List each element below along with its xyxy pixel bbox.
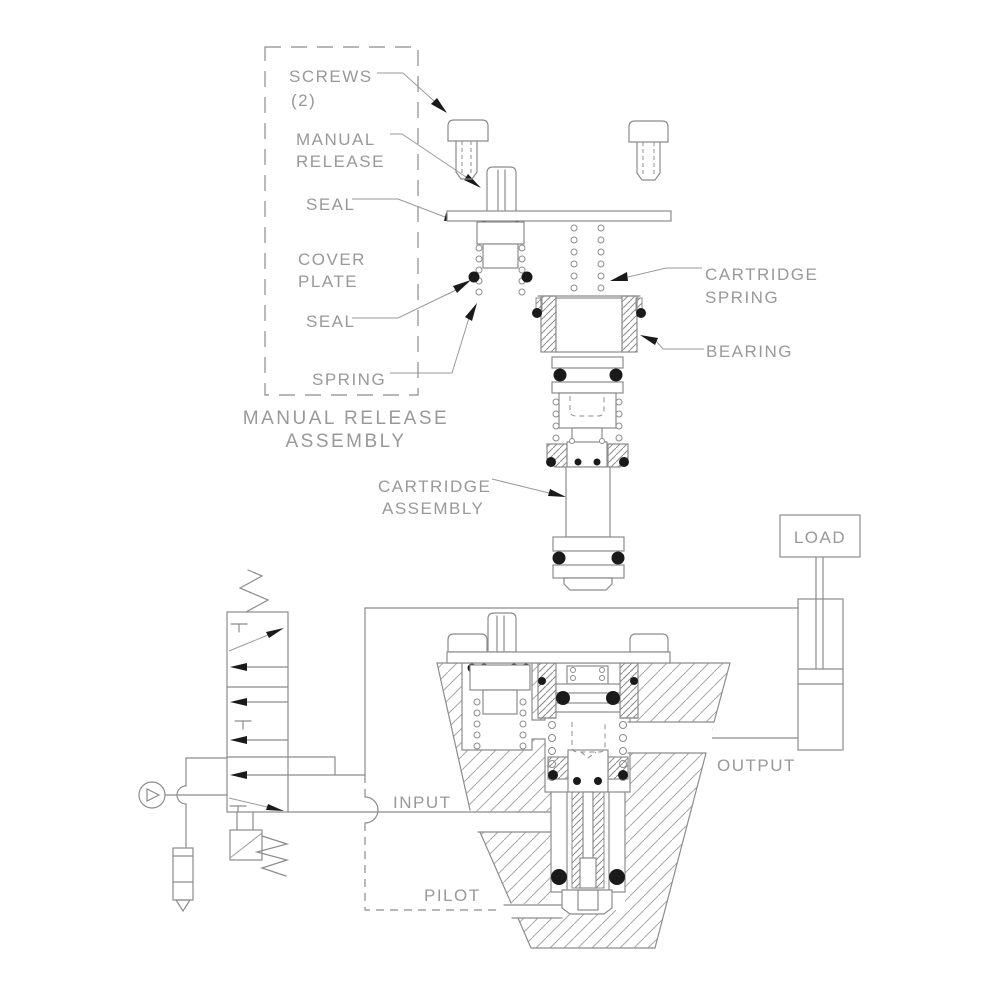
cartridge-assembly-label-line1: CARTRIDGE xyxy=(378,477,491,496)
input-label: INPUT xyxy=(393,793,452,812)
screws-label-line1: SCREWS xyxy=(289,67,373,86)
screw-head-installed xyxy=(448,634,487,652)
valve-block-section xyxy=(437,613,730,948)
load-circuit: LOAD xyxy=(780,515,860,750)
pilot-channel xyxy=(500,904,565,918)
piston-oring xyxy=(554,369,567,382)
seal-oring xyxy=(469,272,480,283)
screw-right xyxy=(629,121,668,180)
line-hop xyxy=(365,797,378,823)
output-label: OUTPUT xyxy=(717,756,796,775)
bearing-arrowhead xyxy=(640,335,658,345)
cartridge-spring-label-line2: SPRING xyxy=(705,288,779,307)
nose-oring xyxy=(609,869,625,885)
bearing-installed xyxy=(538,663,556,718)
cover-plate-label-line1: COVER xyxy=(298,250,366,269)
bearing-label: BEARING xyxy=(706,342,793,361)
manual-release-arrowhead xyxy=(464,174,481,188)
bearing-part xyxy=(532,296,646,352)
flow-arrow xyxy=(230,663,247,671)
seal-oring xyxy=(636,308,646,318)
screws-label-line2: (2) xyxy=(291,91,316,110)
flow-arrow xyxy=(230,771,247,779)
assembly-caption-line2: ASSEMBLY xyxy=(285,431,406,452)
cartridge-spring-coils xyxy=(571,225,604,291)
nose-oring xyxy=(551,869,567,885)
flow-arrow xyxy=(266,628,284,638)
valve-tick xyxy=(230,806,246,812)
cylinder-symbol xyxy=(798,557,843,750)
knob-installed xyxy=(488,613,516,652)
cartridge-assembly-label-line2: ASSEMBLY xyxy=(382,499,484,518)
seat-seal xyxy=(619,457,629,467)
cartridge-body-part xyxy=(553,467,625,590)
counterbalance-valve-symbol xyxy=(227,570,365,876)
seat-seal xyxy=(575,459,582,466)
piston-part xyxy=(552,357,623,448)
seal-lower-label: SEAL xyxy=(306,312,355,331)
seat-seal xyxy=(546,457,556,467)
load-label: LOAD xyxy=(794,528,846,547)
cartridge-nose xyxy=(564,578,612,590)
spring-label: SPRING xyxy=(312,370,386,389)
seal-oring xyxy=(522,272,533,283)
piston-oring xyxy=(610,369,623,382)
cover-plate-part xyxy=(447,211,671,221)
seal-upper-label: SEAL xyxy=(306,195,355,214)
drain-triangle-icon xyxy=(176,900,190,911)
valve-tick xyxy=(235,721,251,729)
spring-arrowhead xyxy=(465,303,477,321)
cartridge-assembly-arrowhead xyxy=(548,489,566,497)
bearing-installed xyxy=(620,663,638,718)
piston-oring xyxy=(556,691,570,705)
input-channel xyxy=(465,813,556,832)
manual-release-label-line1: MANUAL xyxy=(296,130,376,149)
pump-triangle-icon xyxy=(147,789,159,801)
filter-symbol xyxy=(173,758,227,911)
manual-release-label-line2: RELEASE xyxy=(296,152,385,171)
hydraulic-valve-diagram: SCREWS (2) MANUAL RELEASE SEAL COVER PLA… xyxy=(0,0,1000,1000)
output-channel xyxy=(628,722,712,753)
pilot-label: PILOT xyxy=(424,886,481,905)
flow-arrow xyxy=(266,804,284,811)
body-oring xyxy=(553,552,566,565)
valve-tick xyxy=(231,624,247,632)
cartridge-spring-arrowhead xyxy=(610,272,628,281)
manual-release-boundary-box xyxy=(265,47,418,395)
cover-plate-label-line2: PLATE xyxy=(298,272,358,291)
screw-left xyxy=(448,120,488,179)
seat-part xyxy=(546,439,629,468)
seal-oring xyxy=(532,308,542,318)
pilot-spring-box xyxy=(230,812,287,876)
body-oring xyxy=(612,552,625,565)
seal-lower-arrowhead xyxy=(453,280,471,293)
cartridge-spring-label-line1: CARTRIDGE xyxy=(705,265,818,284)
seat-seal xyxy=(594,459,601,466)
piston-oring xyxy=(606,691,620,705)
flow-arrow xyxy=(230,698,247,706)
screw-head-installed xyxy=(630,634,668,652)
cover-plate-installed xyxy=(447,613,670,663)
flow-arrow xyxy=(230,736,247,744)
assembly-caption-line1: MANUAL RELEASE xyxy=(243,408,449,429)
valve-spring-symbol xyxy=(240,570,268,612)
manual-release-stack xyxy=(469,221,533,295)
manual-release-knob xyxy=(487,167,516,212)
exploded-view: SCREWS (2) MANUAL RELEASE SEAL COVER PLA… xyxy=(243,47,819,590)
